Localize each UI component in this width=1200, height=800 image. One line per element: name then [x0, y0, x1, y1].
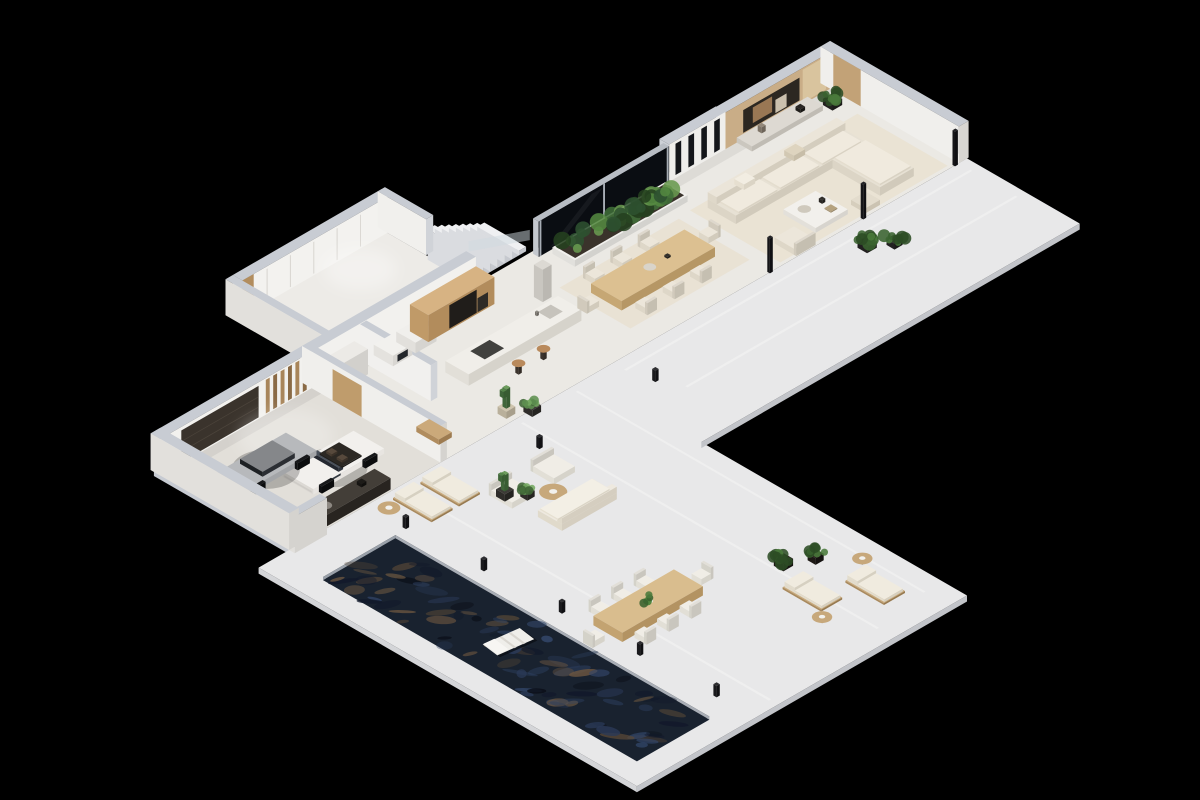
facade-fin-1	[767, 235, 773, 273]
right-table-1-decor	[819, 615, 825, 619]
bollard-6	[536, 434, 542, 449]
right-table-2-decor	[859, 556, 865, 560]
left-table-decor	[385, 506, 392, 510]
bollard-7	[652, 367, 658, 382]
lounge-table-decor	[549, 489, 557, 494]
floor-plan-render	[0, 0, 1200, 800]
bollard-3	[559, 599, 566, 614]
coffee-table-tray	[798, 205, 812, 213]
isometric-scene	[0, 0, 1200, 800]
bollard-4	[637, 641, 643, 656]
dining-column	[534, 260, 552, 303]
bollard-5	[713, 682, 719, 697]
bollard-2	[481, 556, 488, 571]
facade-fin-2	[861, 182, 867, 220]
bollard-1	[403, 514, 410, 529]
facade-fin-3	[953, 129, 958, 167]
island-faucet	[535, 310, 539, 316]
dining-bowl	[643, 263, 656, 270]
closet-ceiling-glow	[324, 248, 397, 290]
